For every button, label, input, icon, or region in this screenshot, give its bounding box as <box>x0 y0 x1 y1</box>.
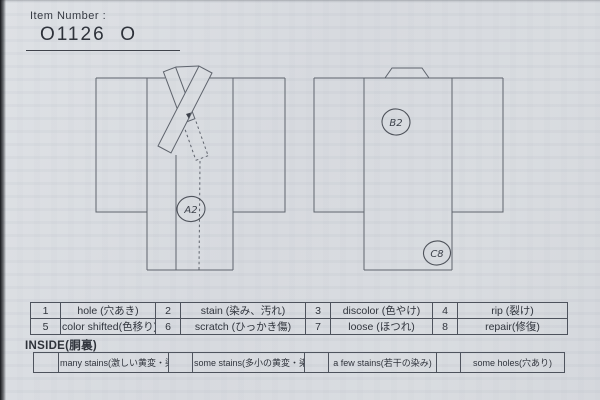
condition-code-cell: 1 <box>31 303 61 319</box>
annotation-label-b2: B2 <box>389 118 402 129</box>
condition-label-cell: scratch (ひっかき傷) <box>181 319 306 335</box>
condition-label-cell: rip (裂け) <box>458 303 568 319</box>
annotation-circle-b2: B2 <box>380 107 411 137</box>
condition-label-cell: color shifted(色移り) <box>61 319 156 335</box>
annotation-label-c8: C8 <box>430 249 443 260</box>
condition-label-cell: discolor (色やけ) <box>331 303 433 319</box>
condition-code-cell: 7 <box>306 319 331 335</box>
inside-checkbox-cell <box>169 353 193 373</box>
inside-checkbox-cell <box>305 353 329 373</box>
condition-label-cell: hole (穴あき) <box>61 303 156 319</box>
condition-table-row: 5 color shifted(色移り) 6 scratch (ひっかき傷) 7… <box>31 319 568 335</box>
condition-label-cell: repair(修復) <box>458 319 568 335</box>
annotation-circle-a2: A2 <box>176 195 206 223</box>
inside-label-cell: some stains(多小の黄変・染み) <box>193 353 305 373</box>
annotation-circle-c8: C8 <box>423 240 452 266</box>
condition-table-row: 1 hole (穴あき) 2 stain (染み、汚れ) 3 discolor … <box>31 303 568 319</box>
condition-code-cell: 2 <box>156 303 181 319</box>
inside-checkbox-cell <box>437 353 461 373</box>
inside-table: many stains(激しい黄変・染み) some stains(多小の黄変・… <box>33 352 565 373</box>
kimono-back-diagram <box>314 68 503 270</box>
inside-label-cell: many stains(激しい黄変・染み) <box>59 353 169 373</box>
annotation-label-a2: A2 <box>183 205 197 216</box>
inspection-sheet: { "header": { "label": "Item Number :", … <box>0 0 600 400</box>
condition-table: 1 hole (穴あき) 2 stain (染み、汚れ) 3 discolor … <box>30 302 568 335</box>
condition-code-cell: 5 <box>31 319 61 335</box>
condition-code-cell: 4 <box>433 303 458 319</box>
condition-label-cell: stain (染み、汚れ) <box>181 303 306 319</box>
kimono-front-diagram <box>96 66 285 270</box>
inside-section-title: INSIDE(胴裏) <box>25 337 97 353</box>
inside-checkbox-cell <box>34 353 59 373</box>
condition-label-cell: loose (ほつれ) <box>331 319 433 335</box>
inside-label-cell: a few stains(若干の染み) <box>329 353 437 373</box>
inside-table-row: many stains(激しい黄変・染み) some stains(多小の黄変・… <box>34 353 565 373</box>
condition-code-cell: 8 <box>433 319 458 335</box>
condition-code-cell: 6 <box>156 319 181 335</box>
inside-label-cell: some holes(穴あり) <box>461 353 565 373</box>
condition-code-cell: 3 <box>306 303 331 319</box>
